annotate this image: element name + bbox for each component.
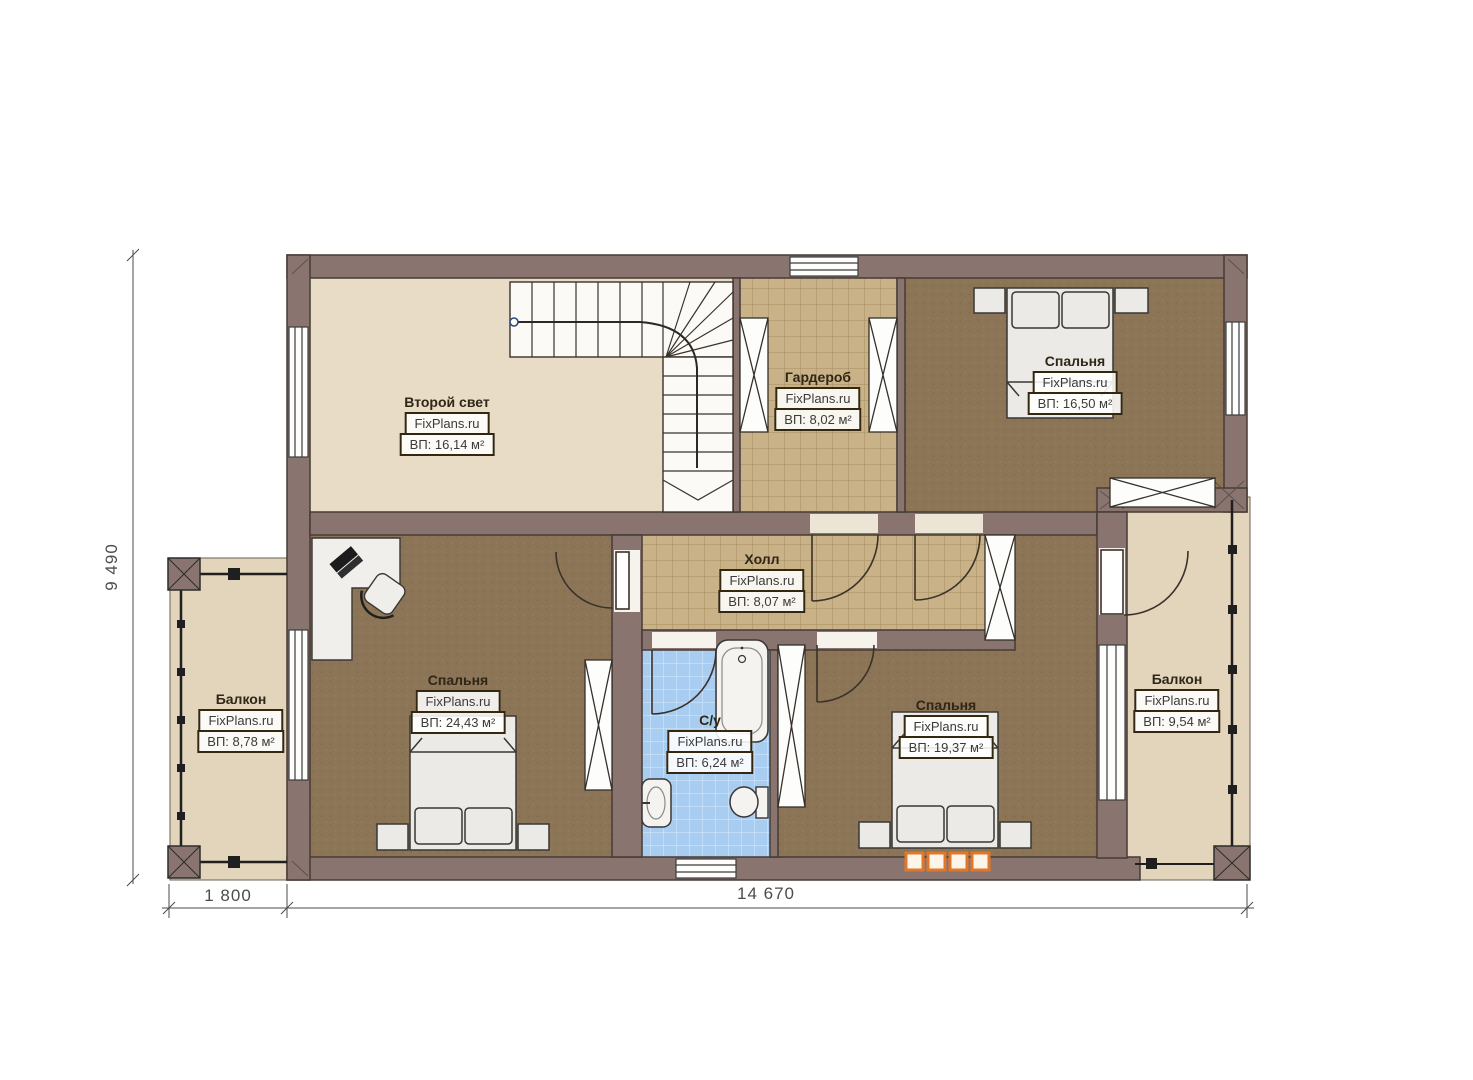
room-name: Второй свет: [404, 394, 489, 410]
brand-label: FixPlans.ru: [1134, 689, 1219, 712]
nightstand: [1000, 822, 1031, 848]
stair-handrail-post: [510, 318, 518, 326]
opening-hall-bedroomtop: [915, 514, 983, 533]
window-right-bedroomright: [1099, 645, 1125, 800]
room-area: ВП: 9,54 м²: [1133, 710, 1220, 733]
nightstand: [518, 824, 549, 850]
bedroom-right-floor-upper: [1015, 535, 1097, 650]
hall-floor: [642, 535, 985, 630]
closet-bedroom-left: [585, 660, 612, 790]
window-left-upper: [289, 327, 308, 457]
brand-label: FixPlans.ru: [404, 412, 489, 435]
dimension-width-main: 14 670: [737, 884, 795, 904]
room-name: Балкон: [1152, 671, 1203, 687]
window-top-wardrobe: [790, 257, 858, 276]
wall-bath-right: [770, 650, 778, 857]
nightstand: [859, 822, 890, 848]
brand-label: FixPlans.ru: [719, 569, 804, 592]
room-name: Гардероб: [785, 369, 851, 385]
closet-wardrobe-left: [740, 318, 768, 432]
room-label-wardrobe: Гардероб FixPlans.ru ВП: 8,02 м²: [774, 369, 861, 431]
nightstand: [974, 288, 1005, 313]
room-name: Балкон: [216, 691, 267, 707]
room-label-bedroom-top: Спальня FixPlans.ru ВП: 16,50 м²: [1028, 353, 1123, 415]
room-area: ВП: 16,50 м²: [1028, 392, 1123, 415]
room-label-balcony-right: Балкон FixPlans.ru ВП: 9,54 м²: [1133, 671, 1220, 733]
room-label-hall: Холл FixPlans.ru ВП: 8,07 м²: [718, 551, 805, 613]
room-area: ВП: 24,43 м²: [411, 711, 506, 734]
brand-label: FixPlans.ru: [415, 690, 500, 713]
room-area: ВП: 16,14 м²: [400, 433, 495, 456]
room-area: ВП: 8,07 м²: [718, 590, 805, 613]
room-area: ВП: 19,37 м²: [899, 736, 994, 759]
closet-bedroom-top: [1110, 478, 1215, 507]
room-area: ВП: 6,24 м²: [666, 751, 753, 774]
room-name: Спальня: [1045, 353, 1105, 369]
toilet: [730, 787, 768, 818]
wall-wardrobe-bedroom: [897, 278, 905, 512]
window-bottom-bathroom: [676, 859, 736, 878]
room-name: Спальня: [428, 672, 488, 688]
room-name: С/у: [699, 712, 721, 728]
wall-stair-wardrobe: [733, 278, 740, 512]
brand-label: FixPlans.ru: [1032, 371, 1117, 394]
room-label-second-light: Второй свет FixPlans.ru ВП: 16,14 м²: [400, 394, 495, 456]
room-label-bathroom: С/у FixPlans.ru ВП: 6,24 м²: [666, 712, 753, 774]
floor-plan-page: Второй свет FixPlans.ru ВП: 16,14 м² Гар…: [0, 0, 1473, 1080]
brand-label: FixPlans.ru: [903, 715, 988, 738]
opening-hall-wardrobe: [810, 514, 878, 533]
brand-label: FixPlans.ru: [198, 709, 283, 732]
room-name: Спальня: [916, 697, 976, 713]
closet-wardrobe-right: [869, 318, 897, 432]
brand-label: FixPlans.ru: [667, 730, 752, 753]
nightstand: [1115, 288, 1148, 313]
window-right-bedroomtop: [1226, 322, 1245, 415]
floor-plan-drawing: [0, 0, 1473, 1080]
room-label-bedroom-left: Спальня FixPlans.ru ВП: 24,43 м²: [411, 672, 506, 734]
dimension-width-balcony: 1 800: [204, 886, 252, 906]
opening-bedroomright: [817, 632, 877, 648]
brand-label: FixPlans.ru: [775, 387, 860, 410]
opening-bathroom: [652, 632, 716, 648]
room-label-bedroom-right: Спальня FixPlans.ru ВП: 19,37 м²: [899, 697, 994, 759]
nightstand: [377, 824, 408, 850]
room-area: ВП: 8,02 м²: [774, 408, 861, 431]
closet-bathroom-side: [778, 645, 805, 807]
room-label-balcony-left: Балкон FixPlans.ru ВП: 8,78 м²: [197, 691, 284, 753]
sink: [642, 779, 671, 827]
room-area: ВП: 8,78 м²: [197, 730, 284, 753]
wall-top: [287, 255, 1247, 278]
dimension-height-total: 9 490: [102, 543, 122, 591]
closet-hall-right: [985, 535, 1015, 640]
window-left-lower: [289, 630, 308, 780]
room-name: Холл: [744, 551, 779, 567]
